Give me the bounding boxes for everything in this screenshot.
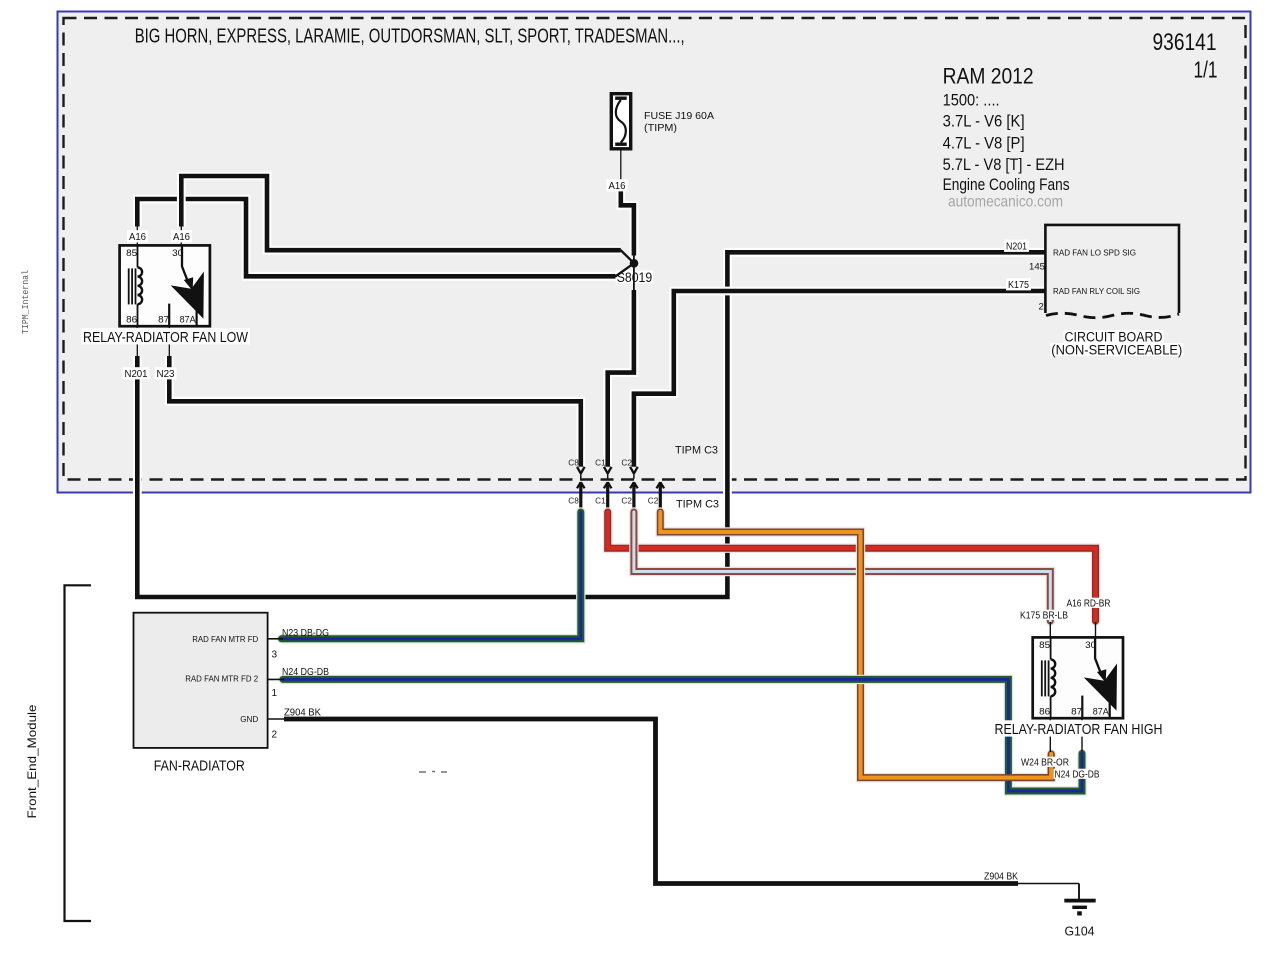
svg-text:TIPM C3: TIPM C3: [676, 499, 719, 511]
svg-text:3: 3: [272, 650, 278, 661]
svg-text:N201: N201: [125, 369, 148, 380]
svg-text:C2: C2: [648, 497, 659, 506]
svg-text:85: 85: [1039, 640, 1050, 651]
svg-text:936141: 936141: [1153, 29, 1217, 56]
svg-text:RELAY-RADIATOR FAN HIGH: RELAY-RADIATOR FAN HIGH: [995, 721, 1163, 738]
svg-text:RELAY-RADIATOR FAN LOW: RELAY-RADIATOR FAN LOW: [83, 329, 249, 346]
svg-text:30: 30: [172, 248, 183, 259]
svg-text:A16 RD-BR: A16 RD-BR: [1067, 599, 1111, 610]
svg-text:W24 BR-OR: W24 BR-OR: [1021, 758, 1069, 769]
svg-text:RAD FAN RLY COIL SIG: RAD FAN RLY COIL SIG: [1053, 286, 1140, 296]
svg-text:RAD FAN MTR FD 2: RAD FAN MTR FD 2: [185, 674, 258, 684]
svg-text:C2: C2: [621, 459, 632, 468]
svg-text:1500: ....: 1500: ....: [943, 92, 1000, 110]
svg-text:145: 145: [1029, 262, 1045, 273]
svg-text:C1: C1: [595, 497, 606, 506]
svg-text:RAD FAN LO SPD SIG: RAD FAN LO SPD SIG: [1053, 248, 1136, 258]
svg-text:2: 2: [272, 730, 278, 741]
svg-text:30: 30: [1085, 640, 1096, 651]
svg-text:A16: A16: [129, 232, 146, 243]
svg-text:TIPM_Internal: TIPM_Internal: [20, 270, 31, 334]
svg-text:Engine Cooling Fans: Engine Cooling Fans: [943, 176, 1070, 194]
svg-text:87: 87: [158, 314, 169, 325]
svg-text:86: 86: [1039, 706, 1050, 717]
svg-text:N23 DB-DG: N23 DB-DG: [282, 628, 329, 639]
svg-text:FAN-RADIATOR: FAN-RADIATOR: [154, 759, 245, 775]
svg-text:1: 1: [272, 688, 278, 699]
svg-text:automecanico.com: automecanico.com: [948, 194, 1063, 211]
svg-text:A16: A16: [609, 181, 626, 192]
svg-text:(TIPM): (TIPM): [644, 122, 677, 134]
svg-text:C8: C8: [568, 459, 579, 468]
svg-text:87A: 87A: [180, 314, 197, 325]
svg-text:Front_End_Module: Front_End_Module: [25, 704, 39, 818]
svg-text:GND: GND: [240, 714, 258, 724]
svg-text:G104: G104: [1065, 924, 1095, 939]
svg-text:RAM 2012: RAM 2012: [943, 64, 1034, 89]
svg-text:86: 86: [126, 314, 137, 325]
svg-text:4.7L - V8 [P]: 4.7L - V8 [P]: [943, 135, 1025, 153]
svg-text:TIPM C3: TIPM C3: [675, 445, 718, 457]
svg-text:FUSE J19 60A: FUSE J19 60A: [644, 110, 714, 122]
svg-text:C8: C8: [568, 497, 579, 506]
svg-text:87A: 87A: [1093, 706, 1110, 717]
svg-text:N23: N23: [157, 369, 175, 380]
svg-text:85: 85: [126, 248, 137, 259]
svg-text:C2: C2: [621, 497, 632, 506]
svg-text:A16: A16: [173, 232, 190, 243]
svg-text:N201: N201: [1006, 242, 1027, 253]
svg-text:C1: C1: [595, 459, 606, 468]
svg-text:5.7L - V8 [T] - EZH: 5.7L - V8 [T] - EZH: [943, 156, 1065, 174]
svg-text:1/1: 1/1: [1194, 57, 1218, 83]
svg-text:Z904 BK: Z904 BK: [984, 872, 1018, 883]
svg-text:3.7L - V6 [K]: 3.7L - V6 [K]: [943, 113, 1025, 131]
svg-text:BIG HORN, EXPRESS, LARAMIE, OU: BIG HORN, EXPRESS, LARAMIE, OUTDORSMAN, …: [135, 25, 685, 48]
svg-text:N24 DG-DB: N24 DG-DB: [1055, 770, 1100, 781]
svg-text:K175: K175: [1008, 280, 1029, 291]
svg-text:RAD FAN MTR FD: RAD FAN MTR FD: [192, 634, 258, 644]
svg-text:2: 2: [1039, 302, 1044, 313]
svg-text:(NON-SERVICEABLE): (NON-SERVICEABLE): [1051, 343, 1182, 358]
svg-text:87: 87: [1071, 706, 1082, 717]
svg-text:N24 DG-DB: N24 DG-DB: [282, 667, 329, 678]
svg-text:K175 BR-LB: K175 BR-LB: [1020, 611, 1068, 622]
